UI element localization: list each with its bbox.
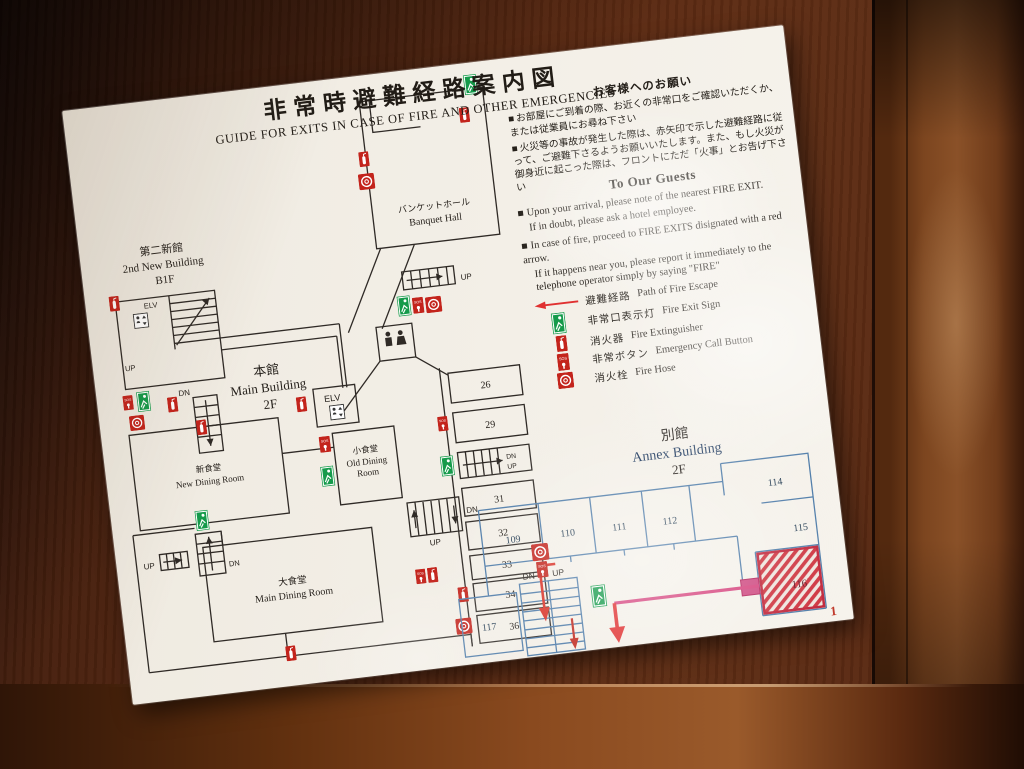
- evacuation-guide-poster: 非常時避難経路案内図 GUIDE FOR EXITS IN CASE OF FI…: [62, 25, 854, 705]
- bullet-icon: ■: [521, 241, 529, 253]
- up-label: UP: [507, 463, 518, 471]
- fire-extinguisher-icon: [108, 296, 120, 312]
- wood-wall: 非常時避難経路案内図 GUIDE FOR EXITS IN CASE OF FI…: [0, 0, 1024, 769]
- room-number: 111: [612, 521, 627, 534]
- room-number: 34: [505, 589, 516, 601]
- room-number: 26: [480, 379, 491, 391]
- elv-label: ELV: [143, 300, 158, 311]
- fire-hose-icon: [358, 173, 376, 191]
- room-number: 116: [791, 578, 808, 591]
- exit-sign-icon: [136, 391, 151, 412]
- sos-button-icon: [412, 297, 425, 314]
- bullet-icon: ■: [511, 143, 518, 155]
- fire-extinguisher-icon: [427, 567, 439, 583]
- fire-hose-icon: [455, 617, 473, 635]
- dn-label: DN: [506, 453, 517, 461]
- room-number: 115: [793, 522, 809, 535]
- fire-hose-icon: [543, 370, 589, 391]
- sos-button-icon: [536, 561, 549, 578]
- dn-label: DN: [466, 505, 479, 515]
- room-number: 29: [485, 419, 496, 431]
- fire-hose-icon: [531, 543, 550, 562]
- exit-sign-icon: [194, 510, 209, 531]
- room-number: 31: [494, 494, 505, 506]
- fire-extinguisher-icon: [167, 397, 179, 413]
- second-building-ja: 第二新館: [139, 240, 184, 259]
- sos-button-icon: [437, 416, 449, 432]
- wood-panel-right: [872, 0, 1024, 769]
- dn-label: DN: [178, 388, 191, 398]
- sos-button-icon: [319, 436, 332, 453]
- fire-hose-icon: [425, 296, 443, 314]
- elv-label: ELV: [324, 392, 341, 404]
- main-building-ja: 本館: [252, 361, 280, 379]
- bullet-icon: ■: [517, 208, 525, 220]
- room-number: 36: [509, 621, 520, 633]
- main-building-floor: 2F: [263, 396, 278, 413]
- restroom-icon: [384, 330, 406, 347]
- dn-label: DN: [228, 558, 240, 568]
- fire-extinguisher-icon: [196, 419, 208, 435]
- banquet-label-en: Banquet Hall: [409, 211, 463, 228]
- room-number: 110: [560, 527, 576, 540]
- room-number: 33: [501, 559, 512, 571]
- main-building-en: Main Building: [230, 375, 308, 399]
- fire-extinguisher-icon: [285, 645, 297, 661]
- sos-button-icon: [415, 569, 427, 585]
- fire-extinguisher-icon: [358, 151, 370, 167]
- annex-building-ja: 別館: [660, 424, 690, 444]
- room-number: 109: [505, 534, 521, 547]
- escape-route-arrow-icon: [534, 296, 579, 311]
- sos-button-icon: [122, 395, 134, 411]
- up-label: UP: [460, 272, 472, 282]
- fire-hose-icon: [129, 415, 146, 432]
- bullet-icon: ■: [508, 114, 515, 126]
- dn-label: DN: [522, 570, 535, 581]
- up-label: UP: [429, 537, 441, 547]
- exit-sign-icon: [440, 455, 455, 476]
- second-building-floor: B1F: [155, 273, 175, 287]
- exit-sign-icon: [320, 466, 335, 487]
- room-number: 114: [767, 476, 783, 489]
- fire-exit-sign-icon: [536, 310, 582, 336]
- new-dining-en: New Dining Room: [175, 472, 244, 490]
- exit-sign-icon: [396, 295, 411, 316]
- elevator-icon: [329, 404, 345, 420]
- up-label: UP: [552, 567, 565, 578]
- exit-sign-icon: [590, 584, 607, 608]
- escape-route-arrows: [534, 540, 764, 653]
- old-dining-ja: 小食堂: [352, 443, 379, 456]
- main-dining-en: Main Dining Room: [255, 585, 334, 605]
- main-dining-ja: 大食堂: [278, 573, 308, 588]
- annex-building-floor: 2F: [671, 461, 686, 478]
- second-building-en: 2nd New Building: [122, 254, 205, 276]
- elevator-icon: [133, 313, 149, 329]
- up-label: UP: [143, 561, 155, 571]
- up-label: UP: [125, 363, 136, 373]
- fire-extinguisher-icon: [296, 396, 308, 412]
- new-dining-ja: 新食堂: [195, 462, 222, 475]
- old-dining-en2: Room: [357, 466, 380, 479]
- room-number: 112: [662, 515, 678, 528]
- room-number: 117: [481, 621, 497, 634]
